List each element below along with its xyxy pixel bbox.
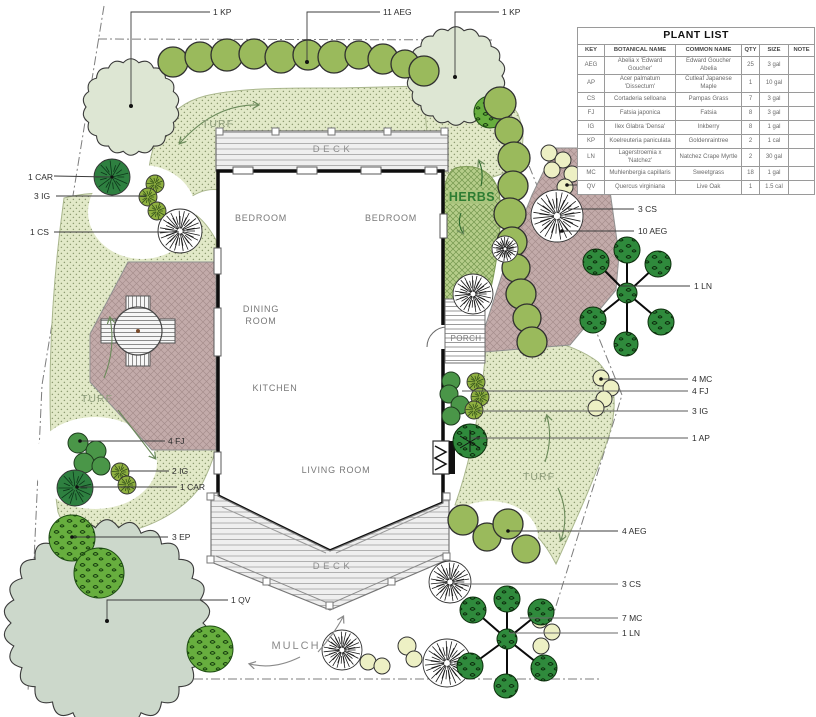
callout-1ln-bottom: 1 LN: [622, 628, 640, 638]
cell-botanical: Koelreuteria paniculata: [605, 135, 676, 149]
plant-row: CSCortaderia selloanaPampas Grass73 gal: [578, 93, 815, 107]
pampas-grass: [531, 190, 583, 242]
room-label-living: LIVING ROOM: [302, 465, 371, 475]
cell-common: Cutleaf Japanese Maple: [676, 75, 742, 93]
plant-row: LNLagerstroemia x 'Natchez'Natchez Crape…: [578, 149, 815, 167]
cell-botanical: Ilex Glabra 'Densa': [605, 121, 676, 135]
room-label-kitchen: KITCHEN: [252, 383, 297, 393]
cell-key: IG: [578, 121, 605, 135]
cell-common: Sweetgrass: [676, 167, 742, 181]
plant-list-header: KEY BOTANICAL NAME COMMON NAME QTY SIZE …: [578, 45, 815, 57]
top-deck: DECK: [216, 128, 448, 171]
cell-qty: 1: [742, 181, 760, 195]
plant-row: APAcer palmatum 'Dissectum'Cutleaf Japan…: [578, 75, 815, 93]
cell-common: Inkberry: [676, 121, 742, 135]
cell-note: [789, 181, 815, 195]
cell-note: [789, 75, 815, 93]
cell-key: AEG: [578, 57, 605, 75]
landscape-plan: DECK PORCH DECK: [0, 0, 816, 717]
herbs-label: HERBS: [449, 190, 495, 204]
cell-qty: 2: [742, 135, 760, 149]
callout-1kp-right: 1 KP: [502, 7, 521, 17]
callout-1qv: 1 QV: [231, 595, 251, 605]
pampas-grass: [453, 274, 493, 314]
room-label-bedroom1: BEDROOM: [235, 213, 287, 223]
pampas-grass: [322, 630, 362, 670]
room-label-dining2: ROOM: [245, 316, 276, 326]
cell-qty: 1: [742, 75, 760, 93]
pampas-grass: [429, 561, 471, 603]
plant-row: IGIlex Glabra 'Densa'Inkberry81 gal: [578, 121, 815, 135]
callout-4fj: 4 FJ: [692, 386, 709, 396]
turf-label-left: TURF: [81, 393, 113, 405]
cell-qty: 18: [742, 167, 760, 181]
cell-common: Goldenraintree: [676, 135, 742, 149]
cell-common: Live Oak: [676, 181, 742, 195]
col-common: COMMON NAME: [676, 45, 742, 57]
cell-size: 30 gal: [760, 149, 789, 167]
plant-row: QVQuercus virginianaLive Oak11.5 cal: [578, 181, 815, 195]
cell-key: QV: [578, 181, 605, 195]
cell-note: [789, 167, 815, 181]
pampas-grass: [492, 236, 518, 262]
cell-size: 10 gal: [760, 75, 789, 93]
col-size: SIZE: [760, 45, 789, 57]
cell-size: 3 gal: [760, 93, 789, 107]
callout-4aeg: 4 AEG: [622, 526, 647, 536]
callout-3ep: 3 EP: [172, 532, 191, 542]
cell-size: 1 gal: [760, 121, 789, 135]
porch-label: PORCH: [451, 334, 482, 343]
callout-1ap: 1 AP: [692, 433, 710, 443]
callout-1kp-left: 1 KP: [213, 7, 232, 17]
callout-10aeg: 10 AEG: [638, 226, 667, 236]
pampas-grass: [158, 209, 202, 253]
callout-3cs-bottom: 3 CS: [622, 579, 641, 589]
mulch-label: MULCH: [271, 640, 320, 652]
col-note: NOTE: [789, 45, 815, 57]
cell-botanical: Fatsia japonica: [605, 107, 676, 121]
callout-3ig: 3 IG: [34, 191, 50, 201]
inkberry: [465, 401, 483, 419]
plant-row: AEGAbelia x 'Edward Goucher'Edward Gouch…: [578, 57, 815, 75]
callout-1cs: 1 CS: [30, 227, 49, 237]
cell-size: 3 gal: [760, 107, 789, 121]
col-botanical: BOTANICAL NAME: [605, 45, 676, 57]
callout-4fj-left: 4 FJ: [168, 436, 185, 446]
plant-list-title: PLANT LIST: [578, 28, 815, 45]
cell-key: MC: [578, 167, 605, 181]
callout-2ig: 2 IG: [172, 466, 188, 476]
cell-qty: 2: [742, 149, 760, 167]
cell-size: 1 cal: [760, 135, 789, 149]
turf-label-right: TURF: [523, 471, 555, 483]
cell-qty: 8: [742, 107, 760, 121]
plant-row: MCMuhlenbergia capillarisSweetgrass181 g…: [578, 167, 815, 181]
cell-key: CS: [578, 93, 605, 107]
cell-key: KP: [578, 135, 605, 149]
house: [214, 167, 455, 551]
cell-botanical: Quercus virginiana: [605, 181, 676, 195]
callout-1car-bottom: 1 CAR: [180, 482, 205, 492]
cell-size: 1.5 cal: [760, 181, 789, 195]
cell-note: [789, 149, 815, 167]
cell-key: FJ: [578, 107, 605, 121]
cell-size: 3 gal: [760, 57, 789, 75]
cell-botanical: Lagerstroemia x 'Natchez': [605, 149, 676, 167]
callout-3cs: 3 CS: [638, 204, 657, 214]
cell-size: 1 gal: [760, 167, 789, 181]
cell-common: Pampas Grass: [676, 93, 742, 107]
cell-botanical: Cortaderia selloana: [605, 93, 676, 107]
side-stair-unit: [433, 441, 455, 474]
cell-note: [789, 121, 815, 135]
cell-botanical: Abelia x 'Edward Goucher': [605, 57, 676, 75]
cell-key: AP: [578, 75, 605, 93]
callout-4mc: 4 MC: [692, 374, 712, 384]
room-label-dining1: DINING: [243, 304, 279, 314]
callout-11aeg: 11 AEG: [383, 7, 412, 17]
cell-qty: 8: [742, 121, 760, 135]
cell-note: [789, 57, 815, 75]
col-qty: QTY: [742, 45, 760, 57]
shrub-car: [57, 470, 93, 506]
callout-3ig-right: 3 IG: [692, 406, 708, 416]
cell-botanical: Acer palmatum 'Dissectum': [605, 75, 676, 93]
cell-qty: 7: [742, 93, 760, 107]
cell-common: Natchez Crape Myrtle: [676, 149, 742, 167]
cell-key: LN: [578, 149, 605, 167]
cell-qty: 25: [742, 57, 760, 75]
col-key: KEY: [578, 45, 605, 57]
cell-common: Fatsia: [676, 107, 742, 121]
room-label-bedroom2: BEDROOM: [365, 213, 417, 223]
cell-note: [789, 135, 815, 149]
cell-botanical: Muhlenbergia capillaris: [605, 167, 676, 181]
cell-common: Edward Goucher Abelia: [676, 57, 742, 75]
cell-note: [789, 107, 815, 121]
shrub-row-abelia-top: [158, 39, 439, 86]
deck-label-top: DECK: [313, 144, 353, 155]
cell-note: [789, 93, 815, 107]
callout-1car: 1 CAR: [28, 172, 53, 182]
callout-1ln: 1 LN: [694, 281, 712, 291]
plant-row: KPKoelreuteria paniculataGoldenraintree2…: [578, 135, 815, 149]
inkberry: [118, 476, 136, 494]
plant-list-table: PLANT LIST KEY BOTANICAL NAME COMMON NAM…: [577, 27, 815, 195]
plant-row: FJFatsia japonicaFatsia83 gal: [578, 107, 815, 121]
deck-label-bottom: DECK: [313, 561, 353, 572]
callout-7mc-bottom: 7 MC: [622, 613, 642, 623]
turf-label-top: TURF: [202, 118, 234, 130]
japanese-maple: [453, 424, 487, 458]
